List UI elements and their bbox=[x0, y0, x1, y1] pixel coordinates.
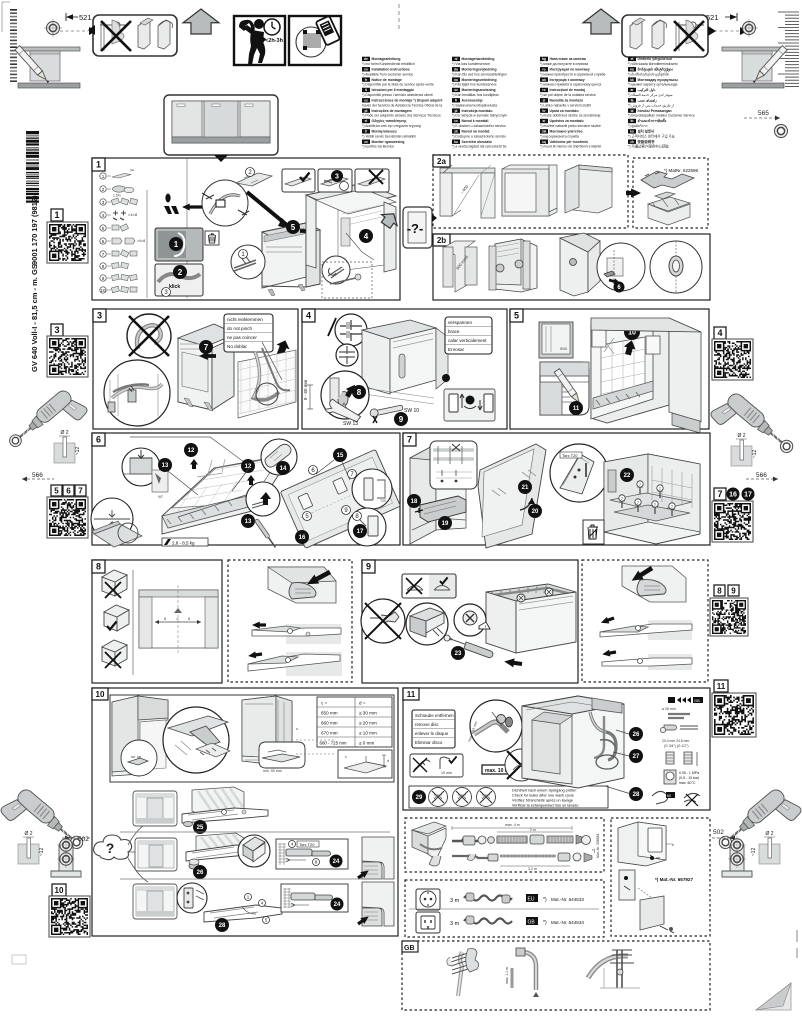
svg-text:3: 3 bbox=[102, 200, 105, 205]
svg-text:Vérifiez l'étanchéité après un: Vérifiez l'étanchéité après un lavage bbox=[512, 799, 573, 803]
svg-text:24: 24 bbox=[333, 859, 340, 865]
svg-text:×4×8: ×4×8 bbox=[128, 212, 138, 217]
svg-text:20.4 mm 24.6 mm: 20.4 mm 24.6 mm bbox=[662, 739, 689, 743]
svg-text:2a: 2a bbox=[437, 157, 446, 166]
svg-text:Verificar la estanqueidad tras: Verificar la estanqueidad tras un lavado bbox=[512, 804, 579, 808]
svg-text:9001 170 197 (9812): 9001 170 197 (9812) bbox=[30, 195, 39, 265]
svg-text:fi: fi bbox=[455, 99, 457, 103]
svg-text:*) se pot obţine de la unitate: *) se pot obţine de la unitatea service bbox=[540, 93, 596, 97]
svg-text:7: 7 bbox=[204, 343, 209, 352]
svg-text:es: es bbox=[364, 99, 368, 103]
svg-text:Monteringsveiledning: Monteringsveiledning bbox=[462, 78, 497, 82]
svg-text:8: 8 bbox=[102, 264, 105, 269]
svg-text:sv: sv bbox=[454, 88, 458, 92]
svg-text:Návod na montáž: Návod na montáž bbox=[462, 130, 490, 134]
svg-text:Ø 2: Ø 2 bbox=[60, 430, 68, 436]
svg-text:7: 7 bbox=[717, 489, 722, 499]
svg-text:13: 13 bbox=[245, 519, 252, 525]
svg-text:enlever le disque: enlever le disque bbox=[415, 731, 449, 736]
svg-text:≥ 30 mm: ≥ 30 mm bbox=[359, 711, 377, 716]
svg-text:3: 3 bbox=[54, 325, 59, 335]
svg-text:de: de bbox=[364, 57, 368, 61]
svg-text:Udhëzime për montimin: Udhëzime për montimin bbox=[550, 140, 588, 144]
svg-text:*) მომსახურების ცენტრში: *) მომსახურების ცენტრში bbox=[628, 72, 669, 76]
svg-text:nl: nl bbox=[455, 57, 458, 61]
svg-text:SW 10: SW 10 bbox=[404, 408, 419, 414]
svg-text:ro: ro bbox=[542, 88, 545, 92]
svg-text:*) Mat.-Nr. 657927: *) Mat.-Nr. 657927 bbox=[655, 877, 693, 882]
svg-text:xx: xx bbox=[364, 140, 368, 144]
svg-text:*) Disponible par le biais du: *) Disponible par le biais du service ap… bbox=[362, 83, 434, 87]
svg-text:7: 7 bbox=[102, 252, 105, 257]
svg-text:*) Saatavana huoltopalvelusta: *) Saatavana huoltopalvelusta bbox=[452, 103, 497, 107]
svg-text:Montagehandleiding: Montagehandleiding bbox=[462, 57, 495, 61]
svg-text:*) Lahko nabavite v servisni s: *) Lahko nabavite v servisni službi bbox=[540, 103, 591, 107]
svg-text:4: 4 bbox=[364, 232, 369, 241]
svg-text:Instrucciones de montaje *) D: Instrucciones de montaje *) Disponi adqu… bbox=[372, 99, 444, 103]
svg-text:Montier rganwiesing: Montier rganwiesing bbox=[372, 140, 405, 144]
svg-text:Uputa za montažu: Uputa za montažu bbox=[550, 109, 579, 113]
svg-text:Installation instructions: Installation instructions bbox=[372, 67, 410, 71]
svg-text:zh: zh bbox=[630, 140, 634, 144]
svg-text:ko: ko bbox=[630, 130, 634, 134]
svg-text:10: 10 bbox=[55, 886, 64, 895]
svg-text:-?-: -?- bbox=[407, 221, 424, 236]
svg-text:GV 640 Voll-I - 81,5 cm - m. G: GV 640 Voll-I - 81,5 cm - m. GS bbox=[30, 264, 39, 372]
svg-text:Intruksi Pemasangan: Intruksi Pemasangan bbox=[638, 109, 672, 113]
svg-text:(G 3/4") (G 1/2"): (G 3/4") (G 1/2") bbox=[664, 744, 688, 748]
svg-text:Монтажно упатство: Монтажно упатство bbox=[550, 130, 583, 134]
svg-text:5: 5 bbox=[514, 311, 519, 321]
svg-text:Návod k montáži: Návod k montáži bbox=[462, 119, 489, 123]
svg-text:4: 4 bbox=[306, 311, 311, 321]
svg-text:*) متوفر لدى مركز خدمة العملاء: *) متوفر لدى مركز خدمة العملاء bbox=[628, 93, 673, 97]
svg-text:566: 566 bbox=[756, 472, 767, 479]
svg-text:17: 17 bbox=[357, 529, 364, 535]
svg-text:*) Disponibili presso i serviz: *) Disponibili presso i servizio assiste… bbox=[362, 93, 433, 97]
svg-text:Mat.-Nr. 358584: Mat.-Nr. 358584 bbox=[596, 834, 600, 858]
svg-text:calar verticalement: calar verticalement bbox=[448, 338, 487, 343]
svg-text:650 mm: 650 mm bbox=[321, 711, 338, 716]
svg-text:T20: T20 bbox=[380, 499, 386, 503]
svg-text:sq: sq bbox=[542, 140, 546, 144]
svg-text:1: 1 bbox=[174, 240, 179, 249]
svg-text:Monteringsvejledning: Monteringsvejledning bbox=[462, 67, 497, 71]
svg-text:598: 598 bbox=[560, 346, 567, 351]
svg-text:21: 21 bbox=[522, 485, 529, 491]
svg-text:설치 설명서: 설치 설명서 bbox=[638, 129, 655, 134]
svg-text:en: en bbox=[364, 67, 368, 71]
svg-text:15: 15 bbox=[337, 453, 344, 459]
svg-text:~12: ~12 bbox=[751, 848, 757, 857]
svg-text:565: 565 bbox=[758, 110, 769, 117]
svg-text:≥ 10 mm: ≥ 10 mm bbox=[359, 731, 377, 736]
svg-text:Istruzioni per il montaggio: Istruzioni per il montaggio bbox=[372, 88, 414, 92]
svg-text:90°: 90° bbox=[158, 495, 164, 499]
svg-text:502: 502 bbox=[713, 829, 724, 836]
svg-text:fa: fa bbox=[631, 99, 634, 103]
svg-text:Монтаждау нұсқаулығы: Монтаждау нұсқаулығы bbox=[638, 78, 678, 82]
svg-text:Check for leaks after one wash: Check for leaks after one wash cycle bbox=[512, 794, 574, 798]
svg-text:EU: EU bbox=[528, 897, 535, 903]
svg-text:11: 11 bbox=[717, 682, 726, 691]
svg-text:el: el bbox=[365, 119, 368, 123]
svg-text:3: 3 bbox=[97, 311, 102, 321]
svg-text:c: c bbox=[345, 755, 347, 759]
svg-text:10: 10 bbox=[100, 288, 106, 293]
svg-text:3 m: 3 m bbox=[450, 921, 460, 927]
svg-text:*) 可通过客户服务中心获取: *) 可通过客户服务中心获取 bbox=[628, 144, 669, 149]
svg-text:Torx T20: Torx T20 bbox=[562, 453, 578, 458]
svg-text:*) можна отримати в сервісному: *) можна отримати в сервісному центрі bbox=[540, 83, 602, 87]
svg-text:*) MatNr. 622698: *) MatNr. 622698 bbox=[664, 168, 699, 173]
svg-text:pl: pl bbox=[455, 109, 458, 113]
svg-text:5: 5 bbox=[54, 486, 59, 495]
svg-text:(0,5 - 10 bar): (0,5 - 10 bar) bbox=[679, 776, 699, 780]
svg-text:1: 1 bbox=[102, 174, 105, 179]
svg-text:✂: ✂ bbox=[130, 168, 134, 174]
svg-text:Instruções de montagem: Instruções de montagem bbox=[372, 109, 412, 113]
svg-text:11: 11 bbox=[407, 690, 416, 699]
svg-text:6: 6 bbox=[102, 239, 105, 244]
svg-text:660 mm: 660 mm bbox=[321, 721, 338, 726]
svg-text:*) može dobiti kod službe za s: *) može dobiti kod službe za servisiranj… bbox=[540, 114, 601, 118]
svg-text:0.05 - 1 MPa: 0.05 - 1 MPa bbox=[679, 771, 699, 775]
svg-text:670 mm: 670 mm bbox=[321, 731, 338, 736]
svg-text:mk: mk bbox=[542, 130, 547, 134]
svg-text:3 m: 3 m bbox=[450, 898, 460, 904]
svg-text:Szerelési útmutató: Szerelési útmutató bbox=[462, 140, 492, 144]
svg-text:?: ? bbox=[106, 840, 115, 856]
svg-text:*) Fås kjøpt hos kundeservice: *) Fås kjøpt hos kundeservice bbox=[452, 83, 497, 87]
svg-text:502: 502 bbox=[78, 836, 89, 843]
svg-text:*): *) bbox=[543, 920, 547, 926]
svg-text:Напътсвие за монтаж: Напътсвие за монтаж bbox=[550, 57, 587, 61]
svg-text:Schraube entfernen: Schraube entfernen bbox=[415, 713, 454, 718]
svg-text:2: 2 bbox=[178, 268, 183, 277]
svg-text:4: 4 bbox=[717, 328, 722, 338]
svg-text:*) K dostání u zákaznického se: *) K dostání u zákaznického servisu bbox=[452, 124, 506, 128]
svg-text:*) Yetkili servis Servisinden: *) Yetkili servis Servisinden alinabilir bbox=[362, 134, 417, 138]
svg-text:2: 2 bbox=[102, 187, 105, 192]
svg-text:sk: sk bbox=[454, 130, 458, 134]
svg-text:Torx T20: Torx T20 bbox=[299, 842, 315, 847]
svg-text:remove disc: remove disc bbox=[415, 722, 439, 727]
svg-text:max. 60°C: max. 60°C bbox=[679, 781, 696, 785]
svg-text:11: 11 bbox=[573, 406, 580, 412]
svg-text:25: 25 bbox=[197, 825, 204, 831]
svg-text:*) Διατίθεται από την υπηρεσία: *) Διατίθεται από την υπηρεσία τεχνικής bbox=[362, 124, 422, 128]
svg-text:~12: ~12 bbox=[75, 447, 81, 456]
svg-text:13: 13 bbox=[162, 463, 169, 469]
svg-text:*) қызмет көрсету орталығында: *) қызмет көрсету орталығында bbox=[628, 83, 677, 87]
svg-text:sl: sl bbox=[543, 99, 546, 103]
svg-text:*) از طریق خدمات پس از فروش: *) از طریق خدمات پس از فروش bbox=[628, 103, 674, 107]
svg-text:Οδηγίες τοποθέτησης: Οδηγίες τοποθέτησης bbox=[372, 119, 407, 123]
svg-text:7: 7 bbox=[407, 435, 412, 445]
svg-text:24: 24 bbox=[334, 902, 341, 908]
svg-text:10: 10 bbox=[96, 690, 105, 699]
svg-text:Eliminar disco: Eliminar disco bbox=[415, 740, 443, 745]
svg-text:Ümberio yõrgunenud: Ümberio yõrgunenud bbox=[638, 56, 672, 61]
svg-text:*) Kan fås ved hos serviceafde: *) Kan fås ved hos serviceafdelingen bbox=[452, 72, 507, 76]
svg-text:GB: GB bbox=[404, 945, 415, 952]
svg-text:Asennusohje: Asennusohje bbox=[462, 99, 483, 103]
svg-text:No doblar: No doblar bbox=[227, 344, 247, 349]
svg-text:*) Do nabycia w serwisie fabry: *) Do nabycia w serwisie fabrycznym bbox=[452, 114, 507, 118]
svg-text:<2h-3h: <2h-3h bbox=[265, 38, 284, 44]
svg-text:1: 1 bbox=[54, 210, 59, 220]
svg-text:ne pas coincer: ne pas coincer bbox=[227, 335, 257, 340]
svg-text:c =: c = bbox=[321, 701, 328, 706]
svg-text:hu: hu bbox=[454, 140, 458, 144]
svg-text:3.2 m: 3.2 m bbox=[528, 867, 537, 871]
svg-text:kk: kk bbox=[630, 78, 634, 82]
svg-text:*) tuurfbis via Bervice: *) tuurfbis via Bervice bbox=[362, 145, 394, 149]
svg-text:Інструкція з монтажу: Інструкція з монтажу bbox=[550, 78, 585, 82]
svg-text:Ø 2: Ø 2 bbox=[765, 831, 773, 837]
svg-text:verspannen: verspannen bbox=[448, 320, 472, 325]
svg-text:Instrucţiuni de montaj: Instrucţiuni de montaj bbox=[550, 88, 585, 92]
svg-text:Monteringsanvisning: Monteringsanvisning bbox=[462, 88, 496, 92]
svg-text:9: 9 bbox=[399, 415, 404, 424]
svg-text:bg: bg bbox=[542, 57, 546, 61]
svg-text:26: 26 bbox=[633, 732, 640, 738]
svg-text:მონტაჟის ინსტრუქცია: მონტაჟის ინსტრუქცია bbox=[638, 67, 674, 71]
svg-text:id: id bbox=[631, 109, 634, 113]
svg-text:6: 6 bbox=[96, 435, 101, 445]
svg-text:1,5m: 1,5m bbox=[113, 194, 121, 198]
svg-text:16: 16 bbox=[299, 535, 306, 541]
svg-text:2b: 2b bbox=[437, 236, 446, 245]
svg-text:d: d bbox=[387, 759, 389, 763]
svg-text:*) 고객서비스 센터에서 구입 가능: *) 고객서비스 센터에서 구입 가능 bbox=[628, 133, 675, 138]
svg-text:19: 19 bbox=[442, 521, 449, 527]
svg-text:*) ศูนย์บริการ: *) ศูนย์บริการ bbox=[628, 124, 648, 128]
svg-text:d =: d = bbox=[359, 701, 366, 706]
svg-text:60: 60 bbox=[667, 794, 671, 798]
svg-text:23: 23 bbox=[455, 651, 462, 657]
svg-text:*) кај сервисната служба: *) кај сервисната служба bbox=[540, 134, 579, 138]
svg-text:Ø 2: Ø 2 bbox=[737, 433, 745, 439]
svg-text:~12: ~12 bbox=[752, 450, 758, 459]
svg-text:!: ! bbox=[485, 625, 486, 631]
svg-text:ka: ka bbox=[630, 67, 634, 71]
svg-text:≥ 20 mm: ≥ 20 mm bbox=[359, 721, 377, 726]
svg-text:*) bisa didapatkan melalui Cus: *) bisa didapatkan melalui Customer Serv… bbox=[628, 114, 695, 118]
svg-text:*) võib saada klienditeenindus: *) võib saada klienditeenindusest bbox=[628, 62, 678, 66]
svg-text:*) Pode ser adquirido através: *) Pode ser adquirido através dos Serviç… bbox=[362, 114, 441, 118]
svg-text:Navodila za montažo: Navodila za montažo bbox=[550, 99, 584, 103]
svg-text:16: 16 bbox=[729, 492, 737, 499]
svg-text:3: 3 bbox=[335, 174, 339, 181]
svg-text:Montaj kılavuzu: Montaj kılavuzu bbox=[372, 130, 397, 134]
svg-text:max. 4 m: max. 4 m bbox=[505, 823, 520, 827]
svg-text:≥ 0 mm: ≥ 0 mm bbox=[359, 741, 374, 746]
svg-text:1: 1 bbox=[96, 160, 101, 170]
svg-text:8 - 60 mm: 8 - 60 mm bbox=[303, 379, 308, 400]
svg-text:安装说明书: 安装说明书 bbox=[638, 139, 656, 144]
svg-text:Ø 2: Ø 2 bbox=[24, 831, 32, 837]
svg-text:26: 26 bbox=[197, 870, 204, 876]
svg-text:566: 566 bbox=[32, 472, 43, 479]
svg-text:da: da bbox=[454, 67, 458, 71]
svg-text:8: 8 bbox=[357, 388, 362, 397]
svg-text:cs: cs bbox=[454, 119, 458, 123]
svg-text:*): *) bbox=[543, 897, 547, 903]
svg-text:través del Servicio de Asisten: través del Servicio de Asistencia Técnic… bbox=[362, 103, 442, 107]
svg-text:*) Dostupné u zákazníckeho ser: *) Dostupné u zákazníckeho servisu bbox=[452, 134, 506, 138]
svg-text:2 m: 2 m bbox=[530, 828, 536, 832]
svg-text:=: = bbox=[176, 616, 179, 621]
svg-text:2,8 - 8,5 kg: 2,8 - 8,5 kg bbox=[172, 541, 195, 546]
svg-text:22: 22 bbox=[624, 473, 631, 479]
svg-text:9: 9 bbox=[102, 276, 105, 281]
svg-text:uk: uk bbox=[542, 78, 546, 82]
svg-text:th: th bbox=[630, 119, 633, 123]
svg-text:*) можно приобрести в сервисно: *) можно приобрести в сервисной службе bbox=[540, 72, 606, 76]
svg-text:c: c bbox=[296, 726, 298, 731]
svg-text:ru: ru bbox=[542, 67, 545, 71]
svg-text:*) mund të merren në shërbimin: *) mund të merren në shërbimin e klienti… bbox=[540, 145, 601, 149]
svg-text:Notice de montage: Notice de montage bbox=[372, 78, 402, 82]
svg-text:b: b bbox=[672, 843, 674, 847]
svg-text:klick: klick bbox=[169, 284, 180, 290]
svg-text:do not pinch: do not pinch bbox=[227, 326, 252, 331]
svg-text:*) a vevőszolgálat nál szerezh: *) a vevőszolgálat nál szerezhető be bbox=[452, 145, 507, 149]
svg-text:Mat.-Nr. 644533: Mat.-Nr. 644533 bbox=[551, 897, 584, 902]
svg-text:*) nur beim Kundendienst erhäl: *) nur beim Kundendienst erhältlich bbox=[362, 62, 415, 66]
svg-text:~12: ~12 bbox=[39, 848, 45, 857]
svg-text:8: 8 bbox=[96, 562, 101, 572]
svg-text:brace: brace bbox=[448, 329, 460, 334]
svg-text:min. 90 mm: min. 90 mm bbox=[263, 769, 282, 773]
svg-text:14: 14 bbox=[280, 466, 287, 472]
svg-text:GB: GB bbox=[528, 920, 536, 926]
svg-text:no: no bbox=[454, 78, 458, 82]
svg-text:GB: GB bbox=[694, 698, 700, 703]
svg-text:SW 13: SW 13 bbox=[343, 421, 358, 427]
svg-text:27: 27 bbox=[633, 754, 640, 760]
svg-text:17: 17 bbox=[744, 492, 752, 499]
svg-text:521: 521 bbox=[79, 13, 92, 22]
svg-text:Инструкция по монтажу: Инструкция по монтажу bbox=[550, 67, 590, 71]
svg-text:12: 12 bbox=[188, 448, 195, 454]
svg-text:4: 4 bbox=[102, 213, 105, 218]
svg-text:5: 5 bbox=[102, 226, 105, 231]
svg-text:680 - 725 mm: 680 - 725 mm bbox=[320, 741, 347, 746]
svg-text:Uputstvo za montažu: Uputstvo za montažu bbox=[550, 119, 584, 123]
svg-text:*) Available from customer ser: *) Available from customer service bbox=[362, 72, 413, 76]
svg-text:28: 28 bbox=[219, 923, 226, 929]
svg-text:*) може да получите в сервиза: *) може да получите в сервиза bbox=[540, 62, 588, 66]
svg-text:*) možete nabaviti preko servi: *) možete nabaviti preko servisne službe bbox=[540, 124, 601, 128]
svg-text:9: 9 bbox=[731, 586, 736, 595]
svg-text:⌀ 26 mm: ⌀ 26 mm bbox=[662, 707, 676, 711]
svg-text:Enrosar: Enrosar bbox=[448, 347, 465, 352]
svg-text:Montageanleitung: Montageanleitung bbox=[372, 57, 401, 61]
svg-text:Dichtheit nach einem Spülgang: Dichtheit nach einem Spülgang prüfen bbox=[512, 789, 576, 793]
svg-text:28: 28 bbox=[633, 792, 640, 798]
svg-text:5: 5 bbox=[291, 223, 296, 232]
svg-text:20: 20 bbox=[532, 509, 539, 515]
svg-text:Instrukcja montażu: Instrukcja montażu bbox=[462, 109, 493, 113]
svg-text:10 mm: 10 mm bbox=[441, 771, 452, 775]
svg-text:*) Kan beställas hos kundtjäns: *) Kan beställas hos kundtjänst bbox=[452, 93, 499, 97]
svg-text:*) Via loss kundenservice: *) Via loss kundenservice bbox=[452, 62, 490, 66]
svg-text:18: 18 bbox=[411, 499, 418, 505]
svg-text:6: 6 bbox=[66, 486, 71, 495]
svg-text:29: 29 bbox=[416, 795, 423, 801]
svg-text:8: 8 bbox=[717, 586, 722, 595]
svg-text:9: 9 bbox=[366, 562, 371, 572]
svg-text:max. 1,1 m: max. 1,1 m bbox=[505, 967, 509, 984]
svg-text:nicht einklemmen: nicht einklemmen bbox=[227, 317, 263, 322]
svg-text:7: 7 bbox=[78, 486, 83, 495]
svg-text:Mat.-Nr. 644534: Mat.-Nr. 644534 bbox=[551, 920, 584, 925]
svg-text:×4×8: ×4×8 bbox=[137, 239, 145, 243]
